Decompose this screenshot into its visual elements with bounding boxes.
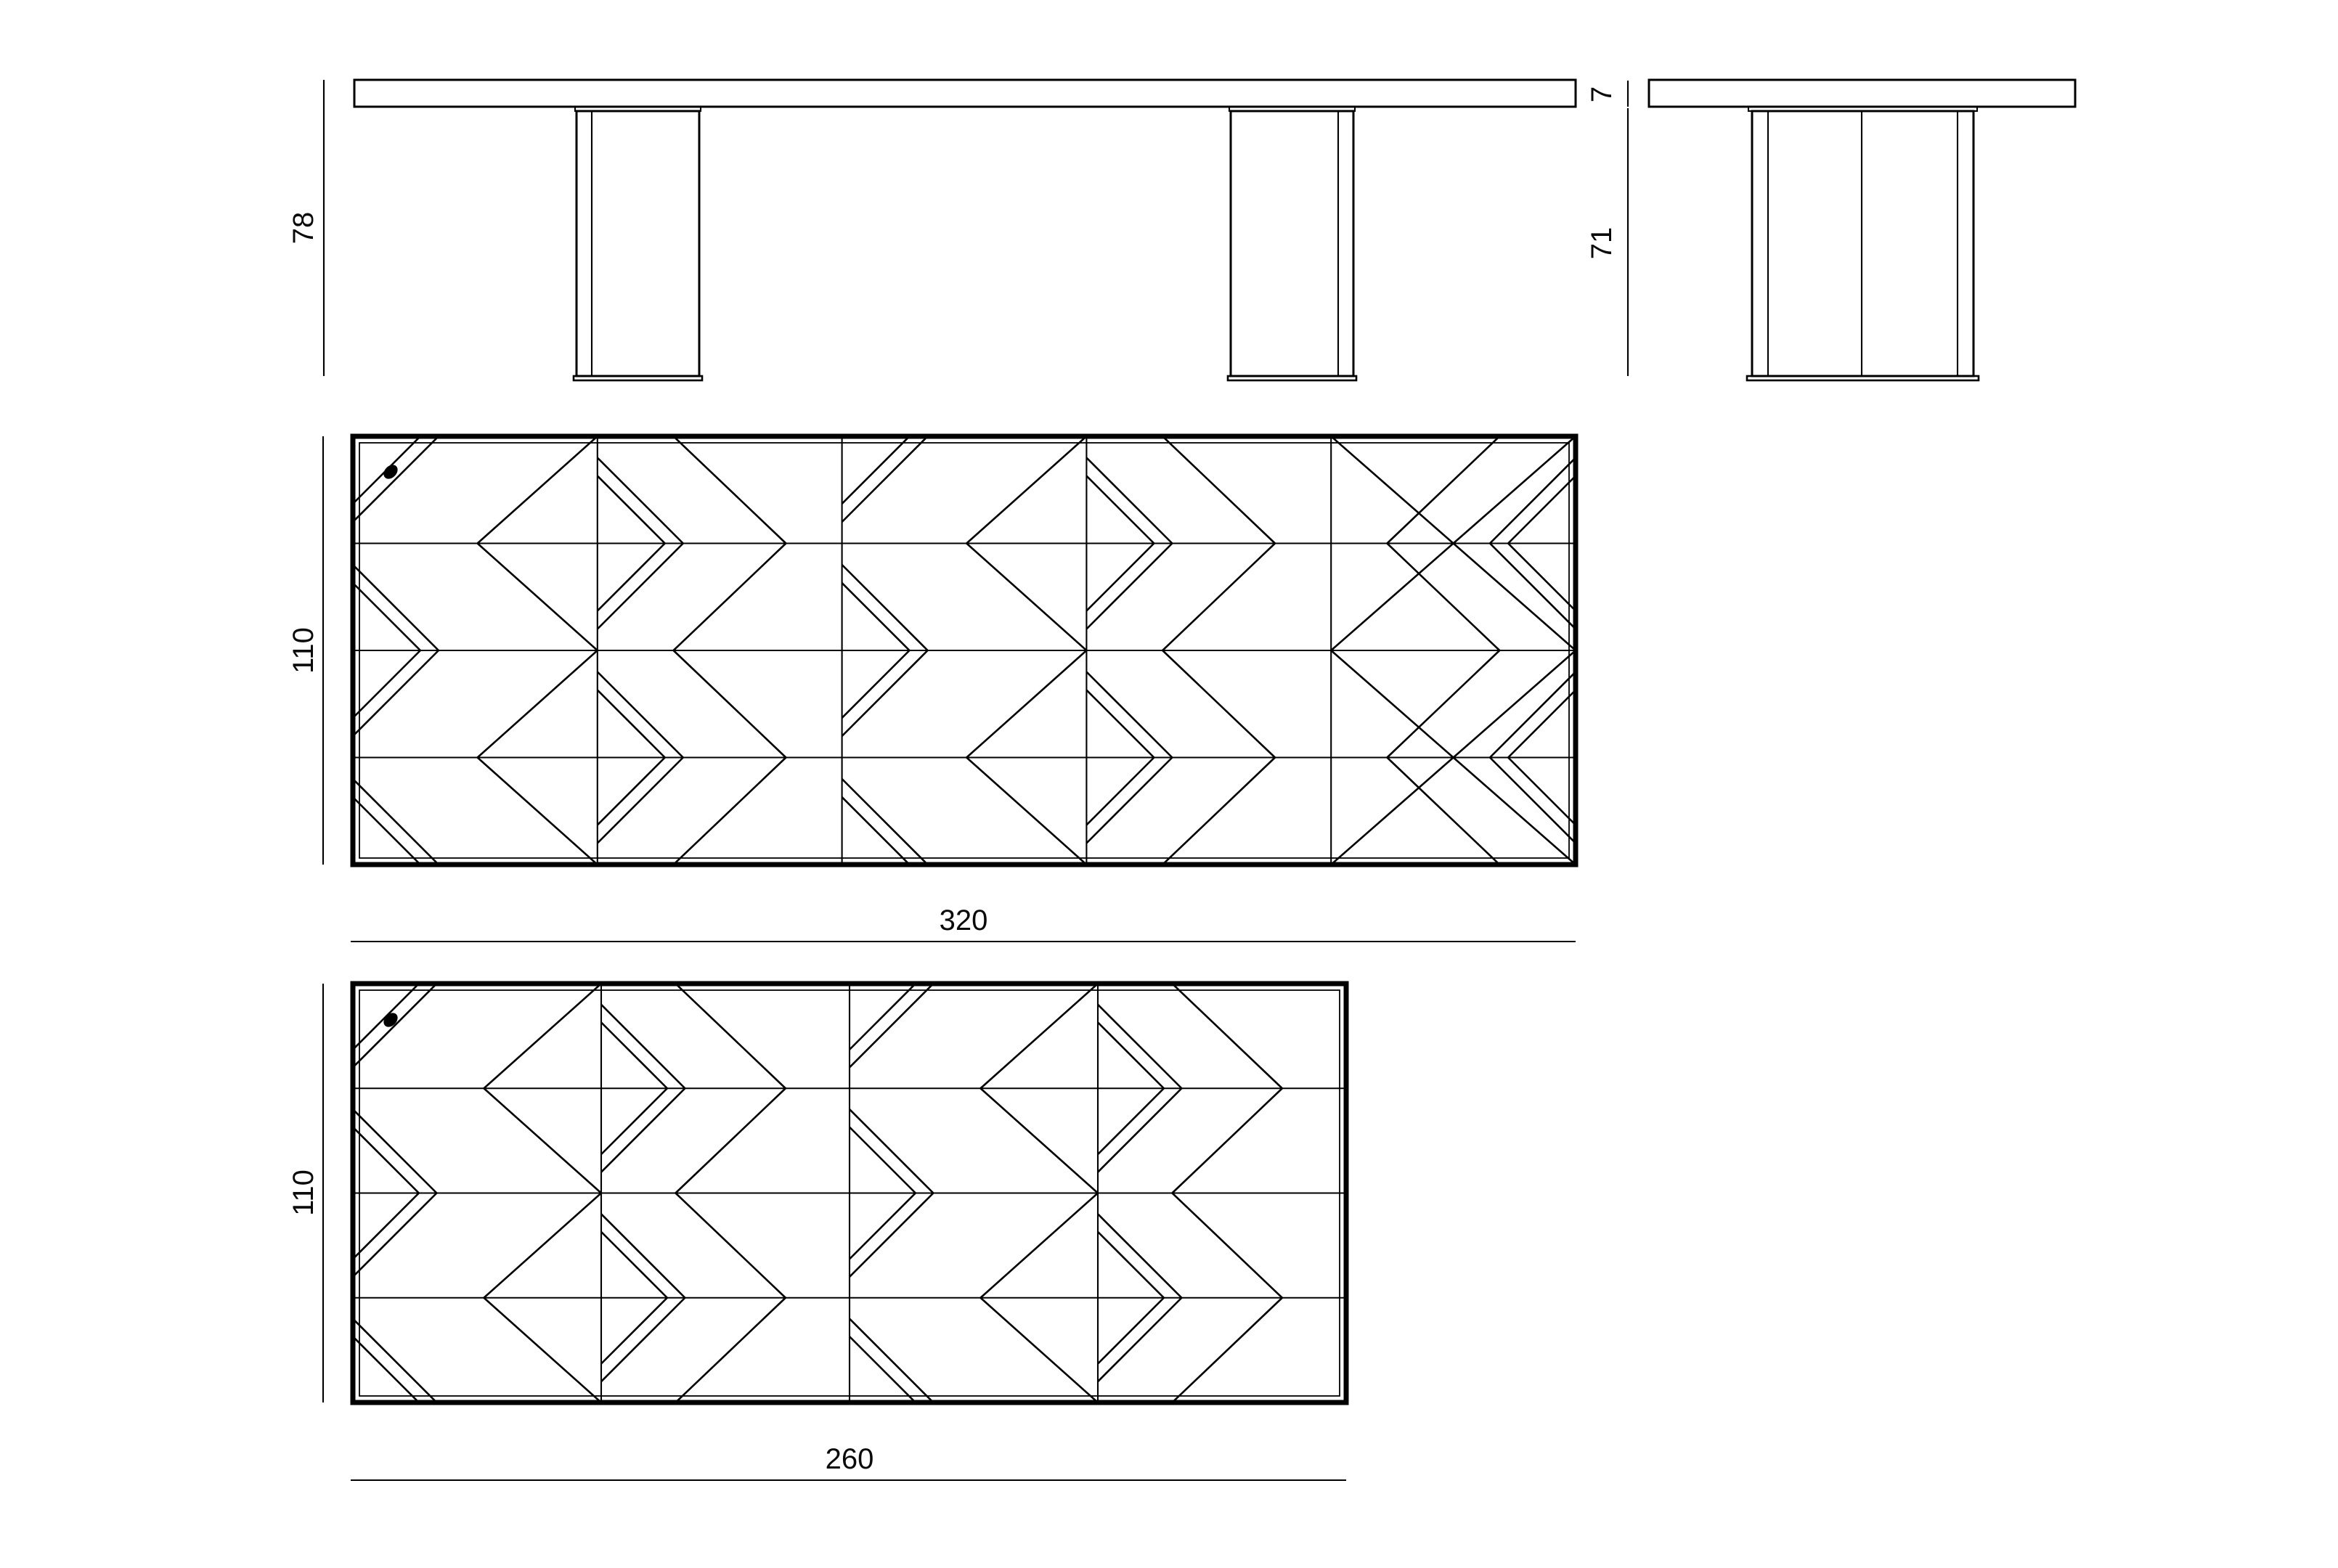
- table-leg: [1747, 107, 1979, 380]
- top-thickness-dimension-label: 7: [1586, 86, 1618, 102]
- depth-dimension-label: 110: [288, 627, 319, 674]
- depth-dimension-label: 110: [288, 1169, 319, 1216]
- width-dimension: 320: [351, 905, 1576, 942]
- depth-dimension: 110: [288, 436, 323, 865]
- table-leg: [574, 107, 702, 380]
- front-height-dimension: 78: [288, 80, 324, 376]
- top-plan-320-view: 110320: [288, 351, 1576, 950]
- top-plan-260-view: 110260: [288, 900, 1346, 1487]
- depth-dimension: 110: [288, 984, 323, 1402]
- top-thickness-dimension: 7: [1586, 81, 1628, 107]
- width-dimension: 260: [351, 1443, 1346, 1480]
- front-elevation-view: 78: [288, 80, 1576, 380]
- front-height-dimension-label: 78: [288, 212, 319, 245]
- width-dimension-label: 260: [826, 1443, 874, 1475]
- drawing-canvas: 78771110320110260: [0, 0, 2338, 1568]
- side-elevation-view: 771: [1586, 80, 2075, 380]
- table-leg: [1228, 107, 1356, 380]
- leg-height-dimension-label: 71: [1586, 227, 1618, 260]
- leg-height-dimension: 71: [1586, 108, 1628, 376]
- technical-drawing-sheet: 78771110320110260: [0, 0, 2338, 1568]
- width-dimension-label: 320: [940, 905, 988, 936]
